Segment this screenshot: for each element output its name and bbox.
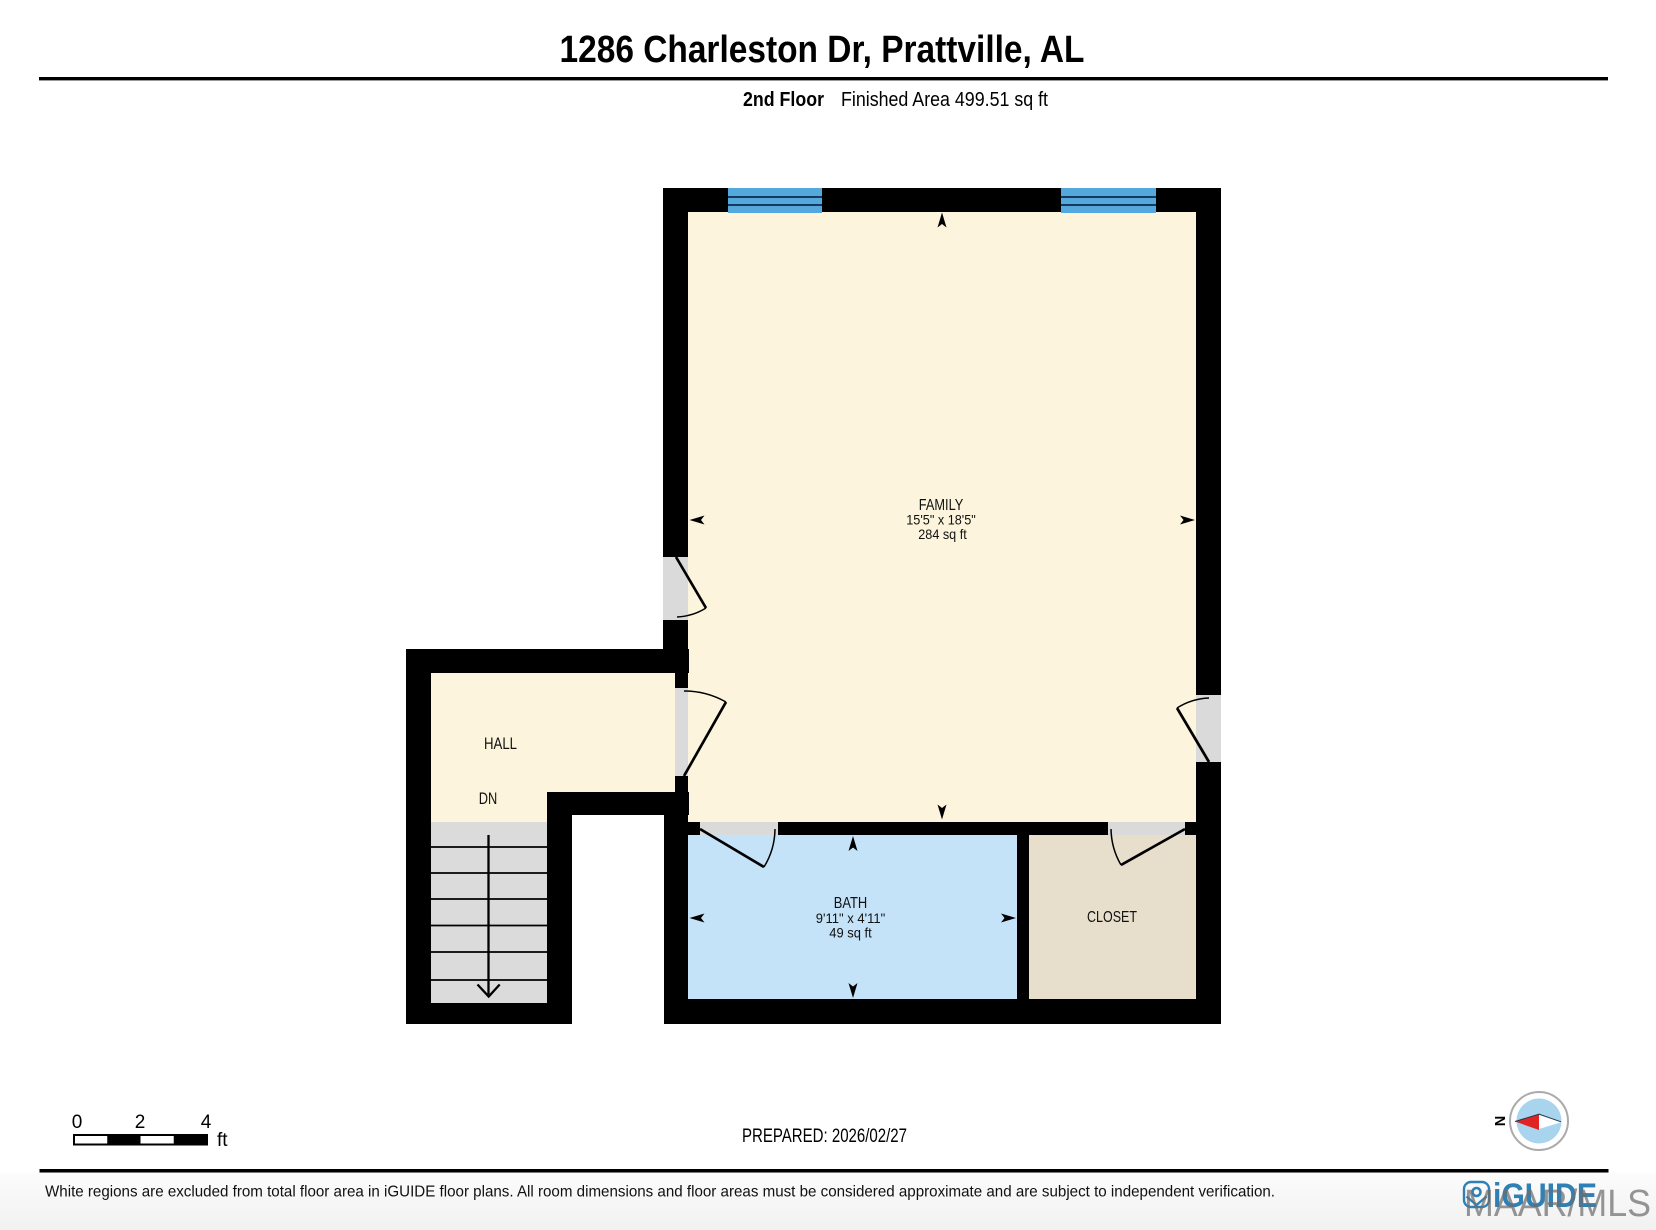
svg-text:ft: ft xyxy=(217,1130,228,1151)
svg-text:CLOSET: CLOSET xyxy=(1087,909,1137,926)
svg-text:MAAR/MLS: MAAR/MLS xyxy=(1464,1183,1651,1225)
svg-text:49 sq ft: 49 sq ft xyxy=(829,925,872,941)
svg-text:284 sq ft: 284 sq ft xyxy=(918,526,967,542)
svg-text:PREPARED: 2026/02/27: PREPARED: 2026/02/27 xyxy=(742,1126,907,1147)
svg-text:Finished Area 499.51 sq ft: Finished Area 499.51 sq ft xyxy=(841,89,1048,111)
svg-text:1286 Charleston Dr, Prattville: 1286 Charleston Dr, Prattville, AL xyxy=(560,29,1085,71)
svg-text:4: 4 xyxy=(201,1112,212,1133)
svg-text:White regions are excluded fro: White regions are excluded from total fl… xyxy=(45,1184,1275,1201)
svg-text:HALL: HALL xyxy=(484,734,517,753)
svg-text:2nd Floor: 2nd Floor xyxy=(743,89,824,111)
svg-text:2: 2 xyxy=(135,1112,146,1133)
svg-text:N: N xyxy=(1493,1116,1509,1126)
svg-text:DN: DN xyxy=(479,789,498,808)
svg-text:0: 0 xyxy=(72,1112,83,1133)
